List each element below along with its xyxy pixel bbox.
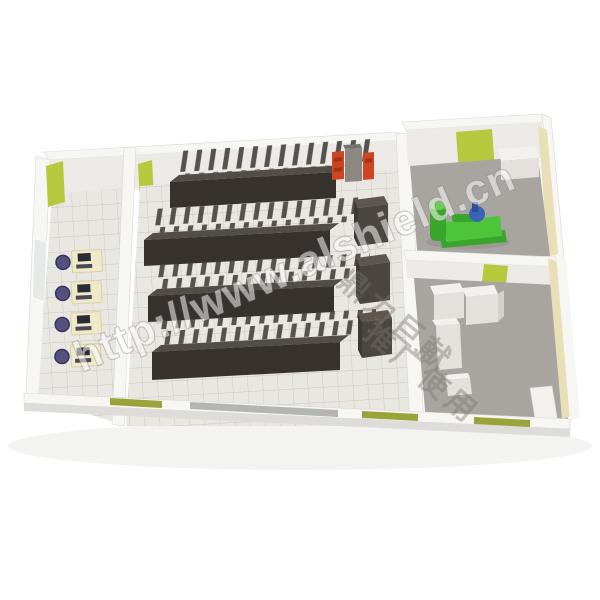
- chair: [55, 349, 70, 364]
- floorplan-svg: http://www.alshield.cn 鼎力巨献 推广使用: [0, 0, 600, 600]
- chair: [55, 286, 70, 301]
- red-cabinet-2: [363, 152, 374, 180]
- keyboard-slot: [76, 264, 92, 269]
- monitor: [78, 253, 91, 262]
- divider-green-panel: [482, 264, 508, 284]
- cabinet-front: [434, 292, 464, 321]
- gray-cabinet: [345, 148, 362, 182]
- chair: [55, 317, 70, 332]
- office-green-panel: [46, 161, 65, 207]
- keyboard-slot: [76, 295, 92, 300]
- ups-cabinet-1: [430, 283, 464, 321]
- monitor: [77, 315, 90, 324]
- chair: [56, 255, 71, 270]
- monitor: [77, 284, 90, 293]
- cabinet-front: [466, 294, 498, 325]
- office-window: [32, 238, 47, 302]
- floorplan-render: http://www.alshield.cn 鼎力巨献 推广使用: [0, 0, 600, 600]
- red-cabinet-1: [332, 151, 344, 180]
